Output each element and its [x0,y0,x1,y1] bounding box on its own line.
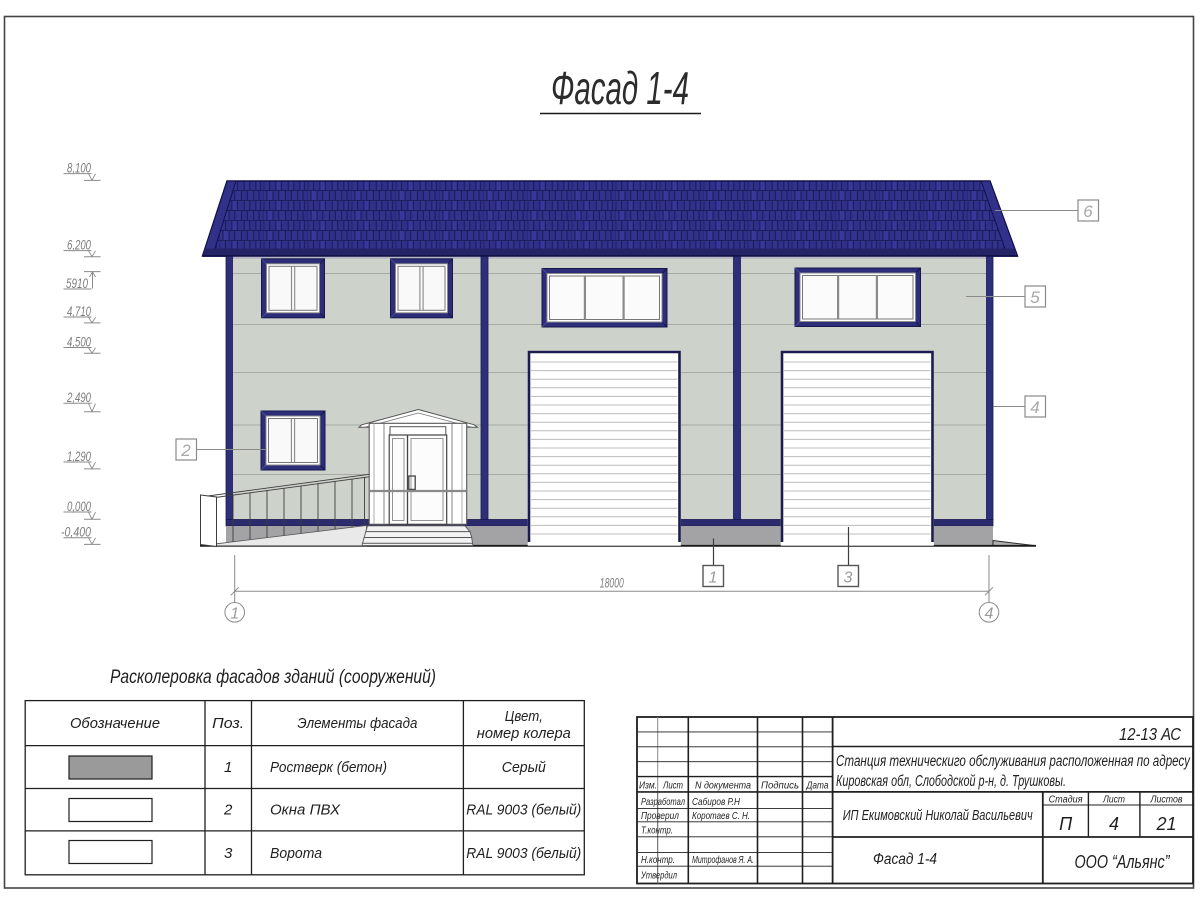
svg-text:Проверил: Проверил [641,810,679,822]
svg-text:4: 4 [1109,814,1119,834]
svg-text:Листов: Листов [1150,795,1183,806]
svg-text:Станция техническиго обслужива: Станция техническиго обслуживания распол… [836,753,1191,770]
svg-text:Т.контр.: Т.контр. [641,825,673,837]
svg-text:Утвердил: Утвердил [640,870,677,882]
svg-text:Элементы фасада: Элементы фасада [297,716,417,732]
svg-text:П: П [1059,814,1073,834]
svg-text:ООО “Альянс”: ООО “Альянс” [1075,852,1171,872]
svg-text:Ростверк (бетон): Ростверк (бетон) [270,759,387,776]
svg-text:Стадия: Стадия [1049,795,1084,806]
svg-text:18000: 18000 [600,576,624,591]
svg-text:1: 1 [230,605,239,622]
svg-text:Изм.: Изм. [639,781,657,792]
svg-text:3: 3 [844,570,853,587]
svg-text:21: 21 [1155,814,1176,834]
svg-text:Цвет,: Цвет, [505,709,543,725]
svg-text:Разработал: Разработал [641,796,685,808]
svg-text:12-13 АС: 12-13 АС [1119,724,1181,744]
svg-text:Н.контр.: Н.контр. [641,854,675,866]
svg-text:номер колера: номер колера [477,726,571,742]
svg-text:Кировская обл, Слободской р-н,: Кировская обл, Слободской р-н, д. Трушко… [836,773,1066,790]
svg-text:Серый: Серый [502,759,547,776]
svg-text:5: 5 [1030,288,1040,307]
svg-text:6: 6 [1083,202,1093,221]
svg-text:3: 3 [224,845,233,862]
svg-text:Расколеровка фасадов зданий (с: Расколеровка фасадов зданий (сооружений) [110,667,436,688]
svg-text:Поз.: Поз. [212,716,244,732]
svg-text:Ворота: Ворота [270,845,322,862]
svg-text:Подпись: Подпись [761,781,799,792]
svg-text:Коротаев С. Н.: Коротаев С. Н. [692,810,750,822]
svg-text:RAL 9003 (белый): RAL 9003 (белый) [466,802,581,819]
svg-text:Митрофанов Я. А.: Митрофанов Я. А. [692,854,754,866]
svg-text:Сабиров Р.Н: Сабиров Р.Н [692,796,740,808]
svg-text:4: 4 [1030,398,1039,417]
svg-text:Фасад 1-4: Фасад 1-4 [873,851,937,868]
svg-text:RAL 9003 (белый): RAL 9003 (белый) [466,845,581,862]
svg-text:Лист: Лист [662,781,683,792]
svg-text:1: 1 [224,759,232,776]
svg-text:2: 2 [180,441,191,460]
svg-text:Фасад 1-4: Фасад 1-4 [551,62,689,114]
svg-text:N документа: N документа [695,781,751,792]
svg-text:4: 4 [985,605,994,622]
svg-text:Дата: Дата [806,781,829,792]
svg-text:Лист: Лист [1102,795,1125,806]
svg-text:Обозначение: Обозначение [70,716,160,732]
svg-text:ИП Екимовский Николай Васильев: ИП Екимовский Николай Васильевич [843,807,1033,824]
svg-text:2: 2 [223,802,233,819]
svg-text:Окна ПВХ: Окна ПВХ [270,802,341,819]
svg-text:1: 1 [709,570,718,587]
